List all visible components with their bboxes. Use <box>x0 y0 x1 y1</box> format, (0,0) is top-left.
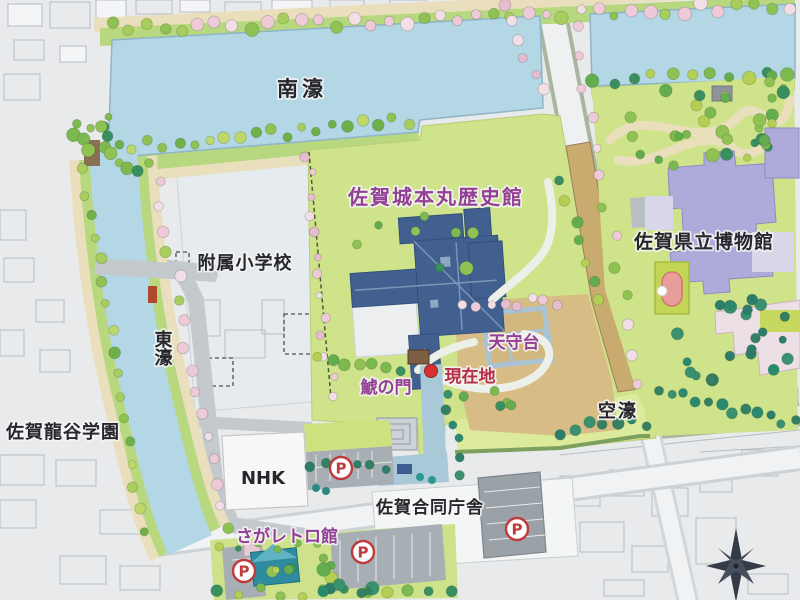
tree-icon <box>158 143 167 152</box>
svg-text:P: P <box>336 460 347 478</box>
tree-icon <box>223 523 234 534</box>
tree-icon <box>300 152 310 162</box>
tree-icon <box>382 466 390 474</box>
tree-icon <box>156 177 165 186</box>
tree-icon <box>127 482 138 493</box>
tree-icon <box>158 226 170 238</box>
tree-icon <box>768 364 779 375</box>
parking-icon: P <box>352 541 374 563</box>
shachi-gate-structure <box>408 350 429 364</box>
tree-icon <box>667 68 679 80</box>
tree-icon <box>749 0 760 9</box>
tree-icon <box>308 194 315 201</box>
tree-icon <box>80 192 89 201</box>
tree-icon <box>660 84 673 97</box>
tree-icon <box>154 202 163 211</box>
tree-icon <box>329 392 338 401</box>
tree-icon <box>455 434 463 442</box>
tree-icon <box>593 2 605 14</box>
label-prefectural-museum: 佐賀県立博物館 <box>633 230 774 253</box>
map-sign-photo: PPPP 南濠 佐賀城本丸歴史館 佐賀県立博物館 附属小学校 東濠 佐賀龍谷学園… <box>0 0 800 600</box>
tree-icon <box>610 12 618 20</box>
tree-icon <box>436 263 445 272</box>
tree-icon <box>779 336 786 343</box>
tree-icon <box>577 5 586 14</box>
tree-icon <box>245 23 259 37</box>
tree-icon <box>765 77 775 87</box>
tree-icon <box>218 132 230 144</box>
label-east-moat: 東濠 <box>152 329 173 367</box>
tree-icon <box>330 21 342 33</box>
tree-icon <box>215 543 223 551</box>
tree-icon <box>636 150 645 159</box>
tree-icon <box>574 235 583 244</box>
tree-icon <box>419 13 430 24</box>
tree-icon <box>572 217 583 228</box>
govt-parking-structure <box>478 472 546 558</box>
tree-icon <box>625 4 638 17</box>
tree-icon <box>387 113 396 122</box>
tree-icon <box>488 301 496 309</box>
tree-icon <box>177 26 188 37</box>
tree-icon <box>452 16 462 26</box>
tree-icon <box>209 454 219 464</box>
tree-icon <box>707 376 716 385</box>
tree-icon <box>660 9 671 20</box>
tree-icon <box>441 405 451 415</box>
parking-icon: P <box>506 518 528 540</box>
label-ryukoku-gakuen: 佐賀龍谷学園 <box>5 421 120 443</box>
tree-icon <box>372 119 384 131</box>
tree-icon <box>646 69 655 78</box>
tree-icon <box>501 299 511 309</box>
tree-icon <box>683 358 691 366</box>
tree-icon <box>715 300 725 310</box>
tree-icon <box>204 433 212 441</box>
tree-icon <box>81 143 95 157</box>
tree-icon <box>175 138 185 148</box>
tree-icon <box>179 315 190 326</box>
tree-icon <box>402 585 414 597</box>
tree-icon <box>382 587 393 598</box>
tree-icon <box>590 276 600 286</box>
tree-icon <box>381 362 392 373</box>
tree-icon <box>459 392 469 402</box>
tree-icon <box>411 227 420 236</box>
tree-icon <box>121 162 134 175</box>
tree-icon <box>102 131 113 142</box>
tree-icon <box>208 16 220 28</box>
tree-icon <box>720 148 732 160</box>
tree-icon <box>741 404 751 414</box>
tree-icon <box>318 586 329 597</box>
tree-icon <box>365 20 376 31</box>
tree-icon <box>581 259 589 267</box>
tree-icon <box>622 319 633 330</box>
tree-icon <box>753 114 766 127</box>
tree-icon <box>96 276 107 287</box>
tree-icon <box>211 479 223 491</box>
tree-icon <box>722 134 733 145</box>
tree-icon <box>91 234 99 242</box>
label-elementary-school: 附属小学校 <box>198 252 293 274</box>
tree-icon <box>305 212 314 221</box>
tree-icon <box>467 227 478 238</box>
tree-icon <box>101 299 109 307</box>
tree-icon <box>768 94 777 103</box>
label-dry-moat: 空濠 <box>598 400 638 422</box>
label-tenshudai: 天守台 <box>489 332 540 353</box>
tree-icon <box>698 116 709 127</box>
tree-icon <box>507 15 518 26</box>
tree-icon <box>235 591 243 599</box>
tree-icon <box>424 587 433 596</box>
tree-icon <box>384 16 394 26</box>
tree-icon <box>759 135 770 146</box>
tree-icon <box>309 227 319 237</box>
tree-icon <box>792 416 800 425</box>
tree-icon <box>694 90 705 101</box>
tree-icon <box>768 119 777 128</box>
tree-icon <box>747 345 757 355</box>
tree-icon <box>573 21 583 31</box>
tree-icon <box>449 421 457 429</box>
tree-icon <box>116 393 125 402</box>
label-retro-kan: さがレトロ館 <box>236 526 338 547</box>
tree-icon <box>283 133 292 142</box>
tree-icon <box>777 86 790 99</box>
label-south-moat: 南濠 <box>277 77 327 101</box>
tree-icon <box>626 350 637 361</box>
tree-icon <box>313 352 322 361</box>
tree-icon <box>782 353 794 365</box>
tree-icon <box>272 567 279 574</box>
tree-icon <box>109 325 119 335</box>
tree-icon <box>191 141 199 149</box>
tree-icon <box>342 121 354 133</box>
tree-icon <box>87 124 95 132</box>
tree-icon <box>726 408 737 419</box>
tree-icon <box>489 8 500 19</box>
tree-icon <box>455 471 465 481</box>
tree-icon <box>471 10 481 20</box>
tree-icon <box>538 295 548 305</box>
tree-icon <box>669 161 679 171</box>
tree-icon <box>585 74 599 88</box>
tree-icon <box>77 163 87 173</box>
tree-icon <box>717 399 729 411</box>
tree-icon <box>577 84 586 93</box>
tree-icon <box>328 120 336 128</box>
tree-icon <box>706 149 719 162</box>
tree-icon <box>312 269 322 279</box>
tree-icon <box>523 7 536 20</box>
tree-icon <box>704 68 715 79</box>
tree-icon <box>72 119 81 128</box>
tree-icon <box>225 20 237 32</box>
tree-icon <box>331 373 338 380</box>
tree-icon <box>691 100 702 111</box>
tree-icon <box>552 300 562 310</box>
tree-icon <box>132 165 143 176</box>
tree-icon <box>353 240 362 249</box>
tree-icon <box>333 579 345 591</box>
tree-icon <box>555 430 566 441</box>
tree-icon <box>142 135 152 145</box>
tree-icon <box>317 563 331 577</box>
tree-icon <box>444 390 453 399</box>
tree-icon <box>126 437 135 446</box>
tree-icon <box>319 554 328 563</box>
label-honmaru-museum: 佐賀城本丸歴史館 <box>347 185 524 209</box>
tree-icon <box>543 11 551 19</box>
label-joint-govt-building: 佐賀合同庁舎 <box>375 497 484 518</box>
tree-icon <box>160 246 172 258</box>
tree-icon <box>644 5 658 19</box>
tree-icon <box>298 123 306 131</box>
tree-icon <box>726 300 735 309</box>
tree-icon <box>261 15 274 28</box>
tree-icon <box>588 112 599 123</box>
tree-icon <box>458 300 467 309</box>
tree-icon <box>190 387 200 397</box>
tree-icon <box>725 351 735 361</box>
tree-icon <box>141 18 152 29</box>
tree-icon <box>752 407 763 418</box>
tree-icon <box>679 388 688 397</box>
tree-icon <box>538 83 550 95</box>
tree-icon <box>780 312 790 322</box>
tree-icon <box>451 228 461 238</box>
tree-icon <box>135 503 146 514</box>
tree-icon <box>678 7 692 21</box>
tree-icon <box>366 358 377 369</box>
retro-parking-east <box>330 524 446 590</box>
tree-icon <box>104 147 117 160</box>
tree-icon <box>654 386 663 395</box>
tree-icon <box>575 52 584 61</box>
tree-icon <box>314 254 321 261</box>
tree-icon <box>338 359 350 371</box>
tree-icon <box>309 169 316 176</box>
tree-icon <box>743 154 751 162</box>
tree-icon <box>704 398 713 407</box>
tree-icon <box>528 294 537 303</box>
tree-icon <box>559 195 570 206</box>
current-location-dot <box>425 365 438 378</box>
tree-icon <box>284 565 294 575</box>
tree-icon <box>365 460 374 469</box>
tree-icon <box>128 460 136 468</box>
tree-icon <box>265 124 276 135</box>
tree-icon <box>532 70 541 79</box>
tree-icon <box>767 411 776 420</box>
tree-icon <box>633 379 642 388</box>
tree-icon <box>471 302 481 312</box>
tree-icon <box>276 592 286 600</box>
tree-icon <box>114 369 123 378</box>
tree-icon <box>96 253 107 264</box>
tree-icon <box>499 0 511 11</box>
tree-icon <box>642 422 651 431</box>
tree-icon <box>507 401 516 410</box>
tree-icon <box>105 113 112 120</box>
tree-icon <box>518 54 527 63</box>
tree-icon <box>780 68 794 82</box>
tree-icon <box>305 462 315 472</box>
svg-text:P: P <box>239 563 250 581</box>
tree-icon <box>313 15 323 25</box>
tree-icon <box>96 121 108 133</box>
tree-icon <box>743 305 753 315</box>
tree-icon <box>668 390 676 398</box>
tree-icon <box>206 136 215 145</box>
tree-icon <box>767 3 778 14</box>
tree-icon <box>175 270 187 282</box>
tree-icon <box>784 4 796 16</box>
tree-icon <box>115 140 124 149</box>
tree-icon <box>496 401 506 411</box>
tree-icon <box>724 73 733 82</box>
tree-icon <box>357 115 369 127</box>
tree-icon <box>609 262 620 273</box>
tree-icon <box>688 70 698 80</box>
tree-icon <box>211 585 223 597</box>
tree-icon <box>316 331 325 340</box>
tree-icon <box>712 5 724 17</box>
tree-icon <box>177 342 189 354</box>
tree-icon <box>629 73 640 84</box>
tree-icon <box>127 145 136 154</box>
tree-icon <box>123 25 134 36</box>
tree-icon <box>311 127 320 136</box>
tree-icon <box>109 347 121 359</box>
parking-icon: P <box>233 560 255 582</box>
tree-icon <box>140 528 148 536</box>
tree-icon <box>400 17 414 31</box>
tree-icon <box>460 261 474 275</box>
tree-icon <box>610 79 620 89</box>
tree-icon <box>627 131 638 142</box>
tree-icon <box>731 0 742 10</box>
tree-icon <box>349 12 362 25</box>
tree-icon <box>512 302 521 311</box>
tree-icon <box>512 35 523 46</box>
tree-icon <box>256 583 265 592</box>
tree-icon <box>235 132 247 144</box>
tree-icon <box>278 13 289 24</box>
tree-icon <box>777 420 785 428</box>
tree-icon <box>555 176 564 185</box>
tree-icon <box>490 386 499 395</box>
label-nhk: NHK <box>241 468 286 489</box>
tree-icon <box>594 170 604 180</box>
tree-icon <box>555 11 569 25</box>
tree-icon <box>298 593 307 600</box>
tree-icon <box>197 408 208 419</box>
tree-icon <box>251 127 262 138</box>
tree-icon <box>364 587 372 595</box>
tree-icon <box>216 501 225 510</box>
tree-icon <box>145 159 154 168</box>
tree-icon <box>191 18 204 31</box>
tree-icon <box>694 0 708 10</box>
tree-icon <box>597 203 606 212</box>
tree-icon <box>321 313 331 323</box>
tree-icon <box>685 367 696 378</box>
tree-icon <box>675 132 683 140</box>
tree-icon <box>747 294 758 305</box>
tree-icon <box>316 292 322 298</box>
tree-icon <box>625 112 636 123</box>
tree-icon <box>758 328 767 337</box>
parking-icon: P <box>330 457 352 479</box>
tree-icon <box>612 231 621 240</box>
tree-icon <box>446 586 457 597</box>
tree-icon <box>396 367 405 376</box>
svg-text:P: P <box>512 521 523 539</box>
tree-icon <box>404 119 414 129</box>
tree-icon <box>623 290 633 300</box>
tree-icon <box>328 355 339 366</box>
tree-icon <box>721 93 730 102</box>
tree-icon <box>174 296 184 306</box>
tree-icon <box>593 144 601 152</box>
tree-icon <box>87 210 97 220</box>
tree-icon <box>655 156 663 164</box>
tree-icon <box>120 414 129 423</box>
label-shachi-gate: 鯱の門 <box>361 377 412 398</box>
tree-icon <box>161 24 172 35</box>
area-guide-map: PPPP 南濠 佐賀城本丸歴史館 佐賀県立博物館 附属小学校 東濠 佐賀龍谷学園… <box>0 0 800 600</box>
tree-icon <box>420 212 429 221</box>
tree-icon <box>354 460 362 468</box>
tree-icon <box>296 13 309 26</box>
tree-icon <box>593 294 604 305</box>
tree-icon <box>690 397 700 407</box>
tree-icon <box>355 359 366 370</box>
tree-icon <box>671 328 683 340</box>
tree-icon <box>570 425 581 436</box>
tree-icon <box>107 17 119 29</box>
tree-icon <box>584 416 596 428</box>
tree-icon <box>187 365 199 377</box>
tree-icon <box>455 453 464 462</box>
tree-icon <box>435 10 446 21</box>
svg-text:P: P <box>358 544 369 562</box>
tree-icon <box>375 221 383 229</box>
label-current-location: 現在地 <box>445 366 496 387</box>
tree-icon <box>743 71 757 85</box>
